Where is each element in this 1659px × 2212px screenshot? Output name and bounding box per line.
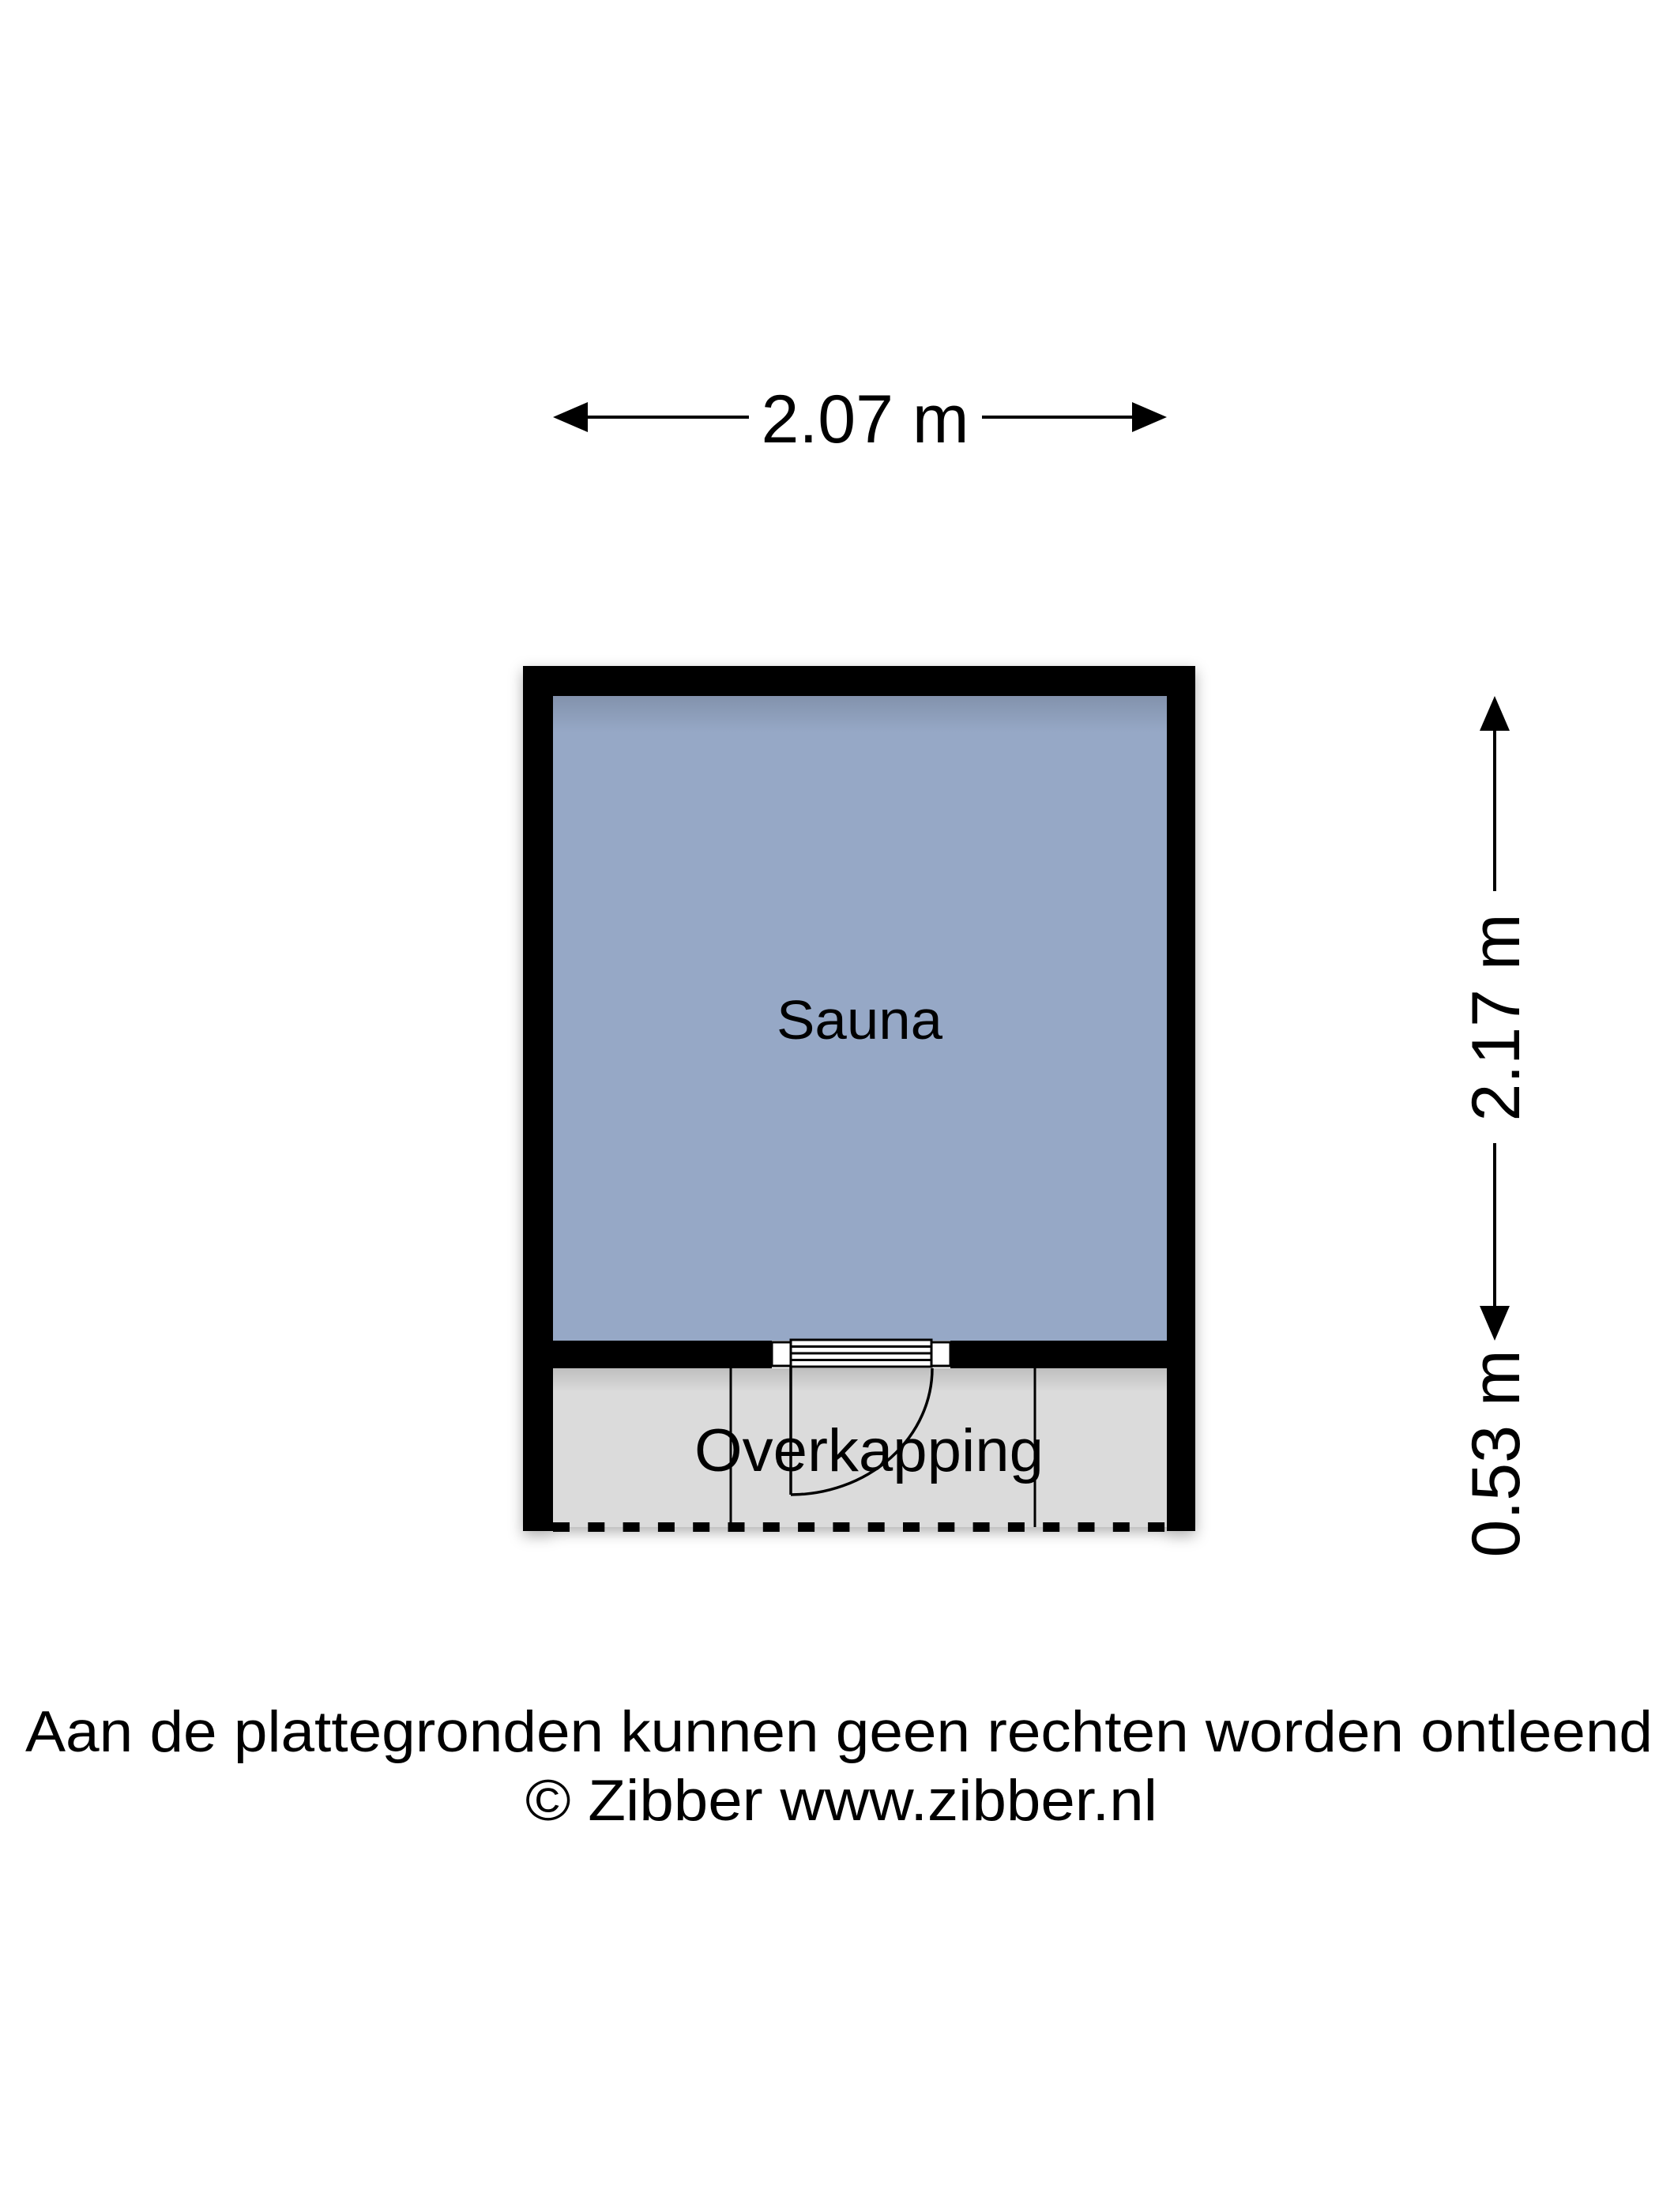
dimension-width: 2.07 m xyxy=(553,382,1167,457)
room-label-overkapping: Overkapping xyxy=(694,1417,1044,1484)
footer-disclaimer: Aan de plattegronden kunnen geen rechten… xyxy=(25,1700,1653,1764)
arrow-down-icon xyxy=(1480,1306,1510,1341)
footer-credit: © Zibber www.zibber.nl xyxy=(525,1769,1157,1833)
door-jamb-left xyxy=(772,1342,791,1366)
dimension-height: 2.17 m xyxy=(1458,696,1534,1341)
door-jamb-right xyxy=(931,1342,950,1366)
floor-plan-canvas: 2.07 m 2.17 m 0.53 m Sauna Overkapping A… xyxy=(0,0,1659,2212)
overkapping-left-wall xyxy=(523,1368,553,1531)
dimension-depth-label: 0.53 m xyxy=(1458,1350,1534,1558)
dimension-height-label: 2.17 m xyxy=(1458,914,1534,1122)
arrow-right-icon xyxy=(1132,402,1167,432)
arrow-left-icon xyxy=(553,402,588,432)
floor-plan-page: 2.07 m 2.17 m 0.53 m Sauna Overkapping A… xyxy=(0,0,1659,2212)
room-label-sauna: Sauna xyxy=(777,989,942,1051)
sauna-floor-shade xyxy=(553,696,1167,732)
overkapping-floor-shade xyxy=(553,1368,1167,1392)
arrow-up-icon xyxy=(1480,696,1510,731)
overkapping-right-wall xyxy=(1167,1368,1195,1531)
dimension-width-label: 2.07 m xyxy=(762,382,969,457)
building xyxy=(523,666,1195,1531)
